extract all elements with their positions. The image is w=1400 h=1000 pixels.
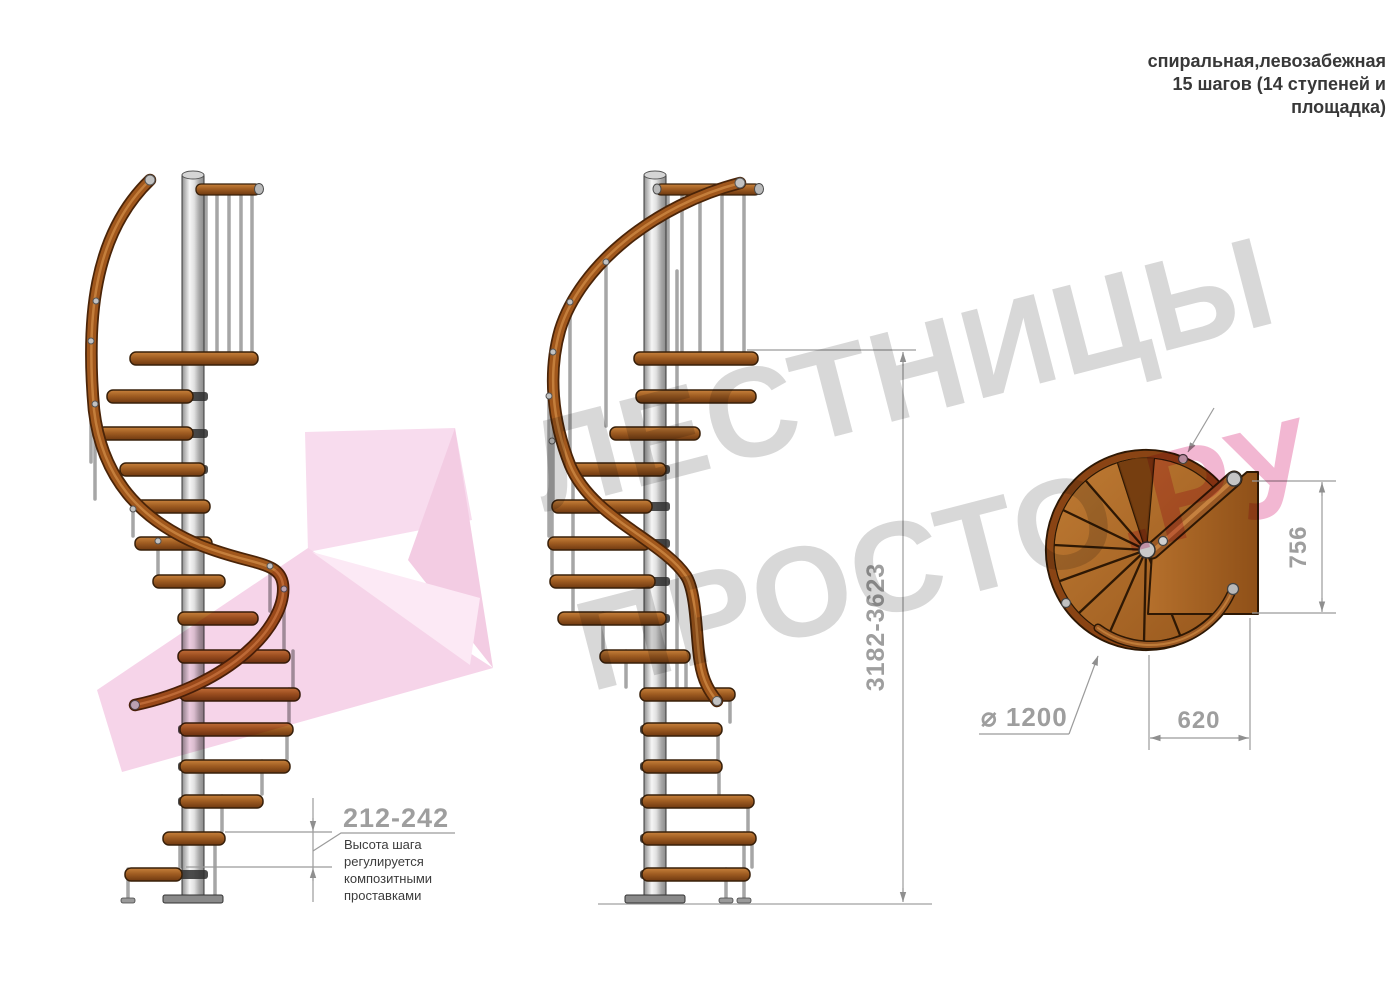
total-height-dimension: 3182-3623 (747, 350, 916, 902)
left-staircase-view (88, 171, 300, 903)
top-plan-view: 756 620 ⌀ 1200 (979, 408, 1336, 750)
plan-leader-top (1188, 408, 1214, 452)
middle-steps (548, 352, 758, 881)
platform-width-label: 620 (1177, 707, 1220, 734)
step-height-dimension: 212-242 Высота шага регулируется компози… (186, 798, 455, 903)
left-platform-railing (196, 184, 264, 196)
step-height-note-line3: композитными (344, 871, 432, 886)
diameter-label: ⌀ 1200 (981, 702, 1068, 732)
drawing-canvas: 3182-3623 212-242 Высота шага регулирует… (0, 0, 1400, 1000)
title-line-3: площадка) (966, 96, 1386, 119)
step-height-note-line2: регулируется (344, 854, 424, 869)
title-line-1: спиральная,левозабежная (966, 50, 1386, 73)
middle-baluster-feet (719, 898, 751, 903)
total-height-label: 3182-3623 (862, 563, 890, 692)
middle-staircase-view (546, 171, 764, 903)
title-line-2: 15 шагов (14 ступеней и (966, 73, 1386, 96)
platform-depth-dimension: 756 (1252, 481, 1336, 613)
diameter-dimension: ⌀ 1200 (979, 656, 1098, 734)
staircase-drawing: 3182-3623 212-242 Высота шага регулирует… (0, 0, 1400, 1000)
step-height-note-line1: Высота шага (344, 837, 422, 852)
platform-depth-label: 756 (1285, 525, 1312, 568)
step-height-note-line4: проставками (344, 888, 421, 903)
step-height-label: 212-242 (343, 803, 449, 833)
title-block: спиральная,левозабежная 15 шагов (14 сту… (966, 50, 1386, 119)
